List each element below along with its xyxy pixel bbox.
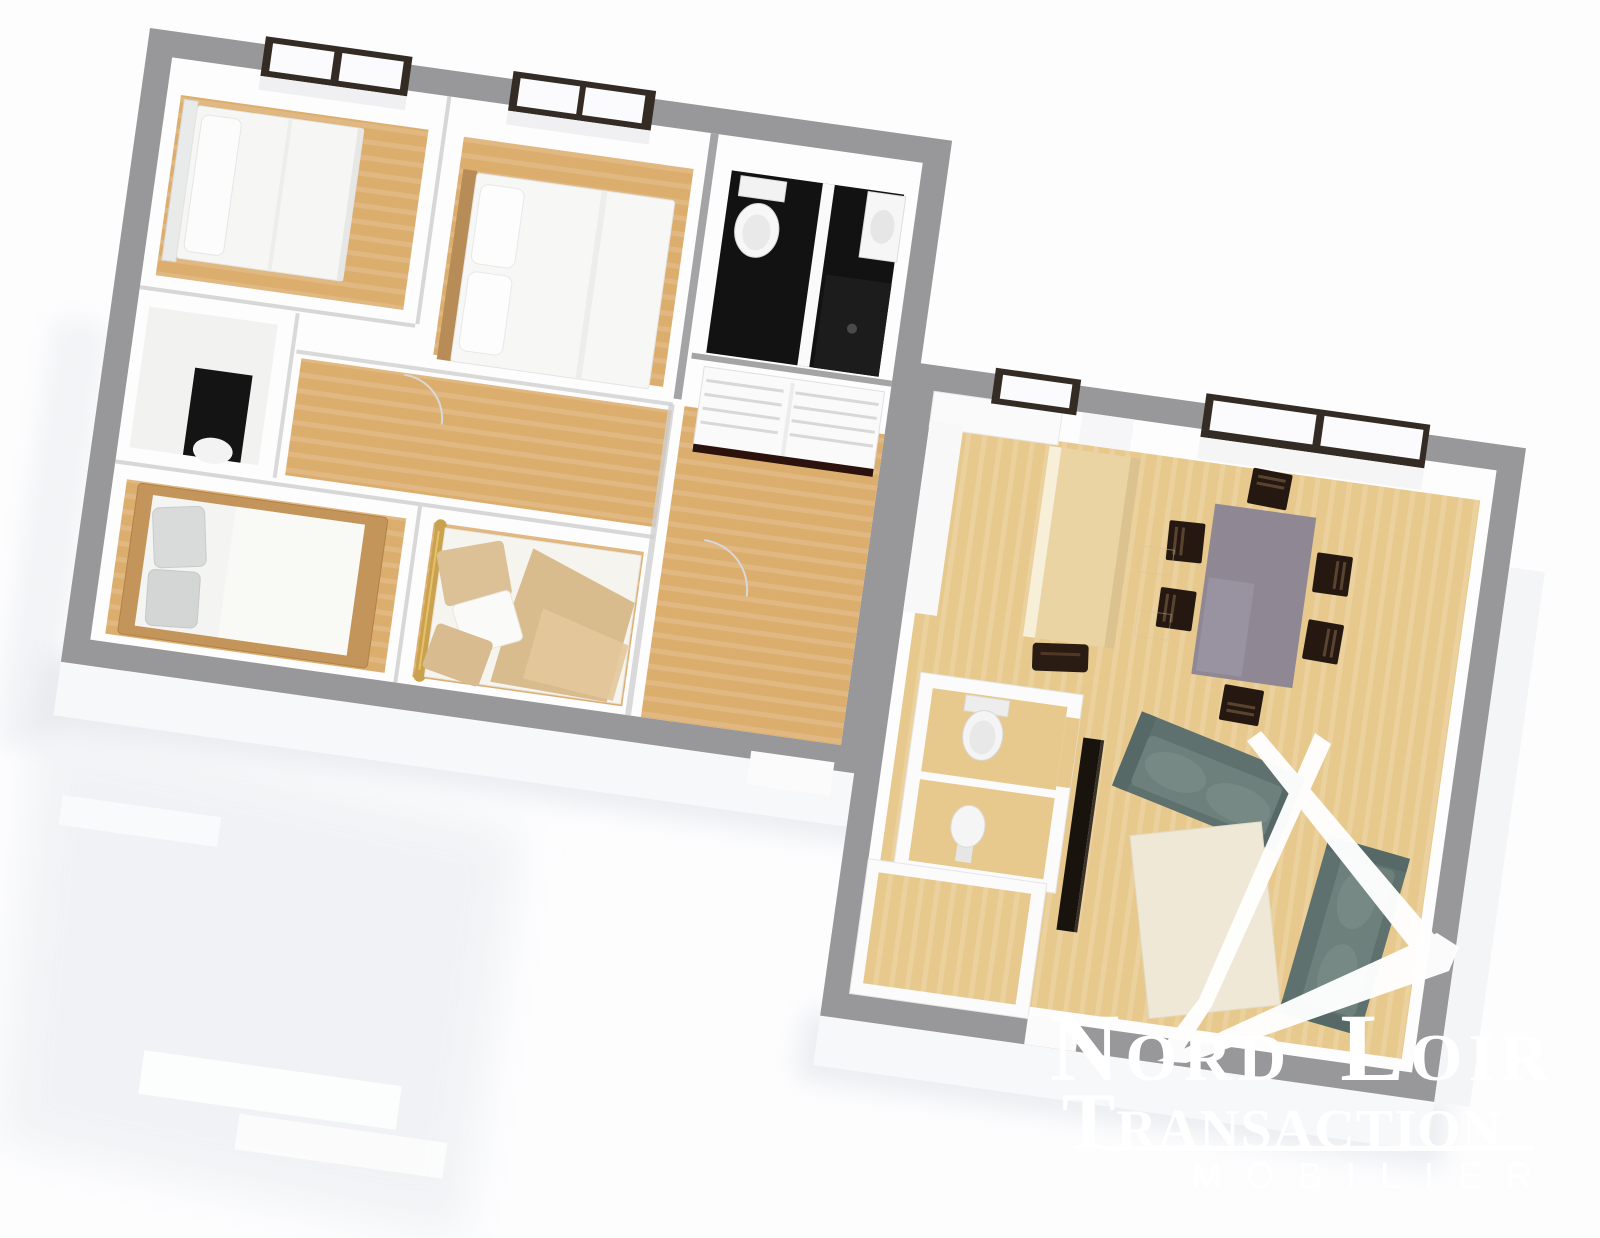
wc-room (893, 672, 1083, 893)
bathroom (706, 170, 906, 377)
watermark-rule (1102, 1146, 1534, 1151)
dining-chair (1302, 619, 1344, 665)
dining-chair (1166, 520, 1206, 564)
entry-room (850, 859, 1047, 1019)
chair-seat (1156, 587, 1197, 632)
duvet (218, 507, 365, 656)
stool-seat (1032, 643, 1089, 673)
dining-chair (1312, 552, 1353, 597)
chair-seat (1247, 468, 1293, 511)
chair-seat (1166, 520, 1206, 564)
dining-chair (1156, 587, 1197, 632)
dining-chair (1219, 684, 1265, 726)
floorplan-render: Nord Loir Transaction MOBILIER (0, 0, 1600, 1238)
pillow-shape (152, 506, 206, 568)
wood-grain-overlay (863, 872, 1031, 1004)
chair-seat (1302, 619, 1344, 665)
pillow-shape (145, 569, 201, 628)
dining-chair (1247, 468, 1293, 511)
bed-pillow-gray (145, 569, 201, 628)
bed-bedroom-2 (437, 169, 676, 389)
chair-seat (1312, 552, 1353, 597)
bed-bedroom-1 (162, 99, 365, 285)
kitchen-stool (1032, 643, 1089, 673)
building-left (0, 13, 971, 867)
background-shadows (0, 720, 520, 1238)
bed-pillow-gray (152, 506, 206, 568)
watermark-brand-line3: MOBILIER (1192, 1158, 1556, 1194)
